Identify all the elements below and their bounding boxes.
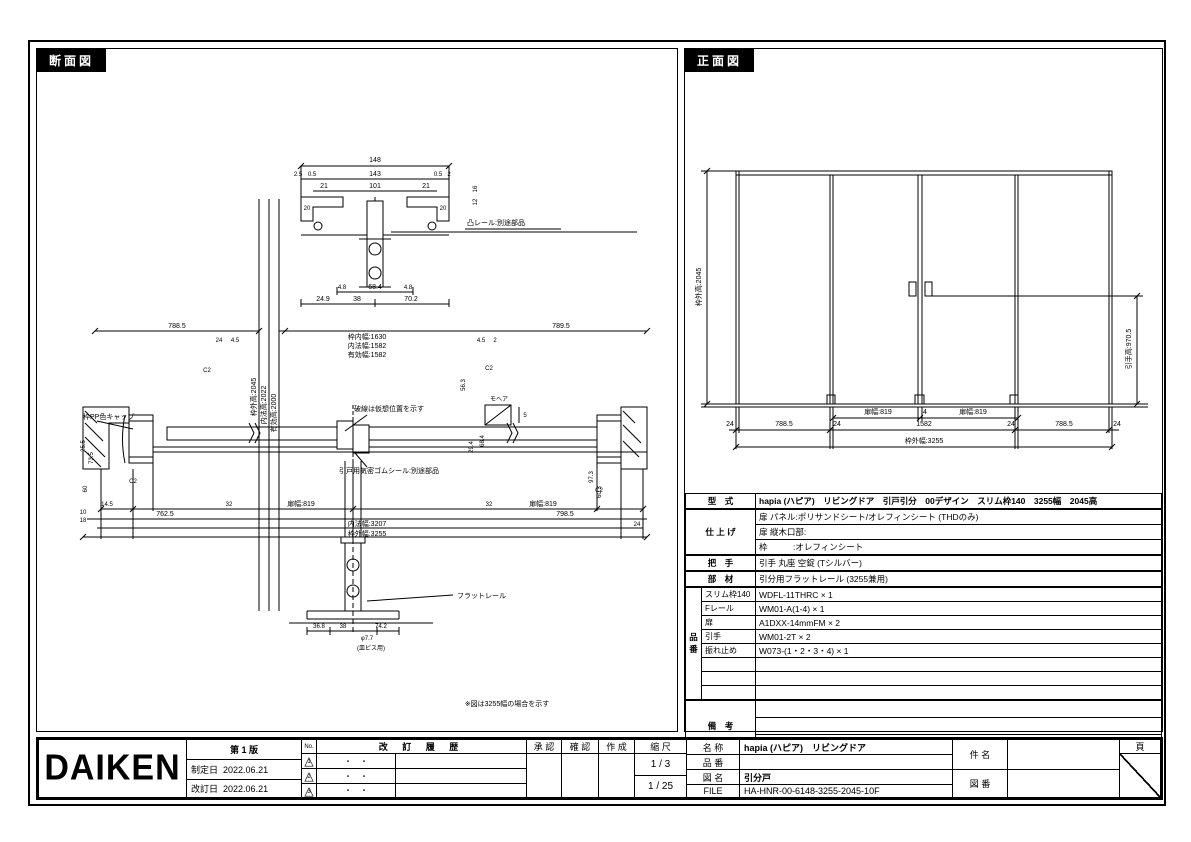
dim-label: 5	[523, 413, 527, 419]
dim-label: 25.5	[81, 440, 87, 452]
dim-label: 0.5	[434, 172, 443, 178]
revision-mark: △1	[301, 753, 317, 769]
dim-label: 内法幅:3207	[348, 519, 387, 528]
dim-label: 24	[216, 338, 223, 344]
dim-label: 60	[83, 485, 89, 492]
dim-label: 扉幅:819	[864, 407, 892, 416]
history-date: ・ ・	[316, 768, 396, 784]
dim-label: 788.5	[775, 421, 793, 428]
enacted-label: 制定日	[191, 763, 218, 776]
subject-value	[1007, 739, 1120, 770]
number-label: 図 番	[952, 769, 1008, 798]
dim-label: 枠PP色キャップ	[83, 412, 134, 421]
dim-label: 内法高:2022	[259, 386, 268, 425]
dim-label: 20	[440, 206, 447, 212]
dim-label: 24	[1113, 421, 1121, 428]
history-desc	[395, 768, 527, 784]
dim-label: 0.5	[308, 172, 317, 178]
dim-label: 788.5	[168, 323, 186, 330]
dim-label: 引手高:970.5	[1124, 329, 1133, 370]
spec-model-value: hapia (ハピア) リビングドア 引戸引分 00デザイン スリム枠140 3…	[756, 494, 1162, 510]
dim-label: モヘア	[490, 396, 508, 403]
dim-label: 36.8	[313, 624, 325, 630]
subject-label: 件 名	[952, 739, 1008, 770]
dim-label: 4.5	[477, 338, 486, 344]
number-value	[1007, 769, 1120, 798]
enacted-date: 2022.06.21	[223, 765, 268, 775]
approve-label: 承 認	[526, 739, 562, 754]
spec-table: 型 式 hapia (ハピア) リビングドア 引戸引分 00デザイン スリム枠1…	[685, 493, 1162, 752]
dim-label: 56.3	[461, 379, 467, 391]
dim-label: 枠外高:2045	[694, 268, 703, 307]
spec-hinban-name: スリム枠140	[702, 587, 756, 602]
dim-label: 24	[726, 421, 734, 428]
dim-label: 2	[493, 338, 497, 344]
dim-label: 18	[80, 518, 87, 524]
edition-label: 第 1 版	[186, 739, 302, 760]
front-view-panel: 正面図	[684, 48, 1163, 732]
dim-label: 24	[1007, 421, 1015, 428]
revision-mark: △2	[301, 768, 317, 784]
dim-label: 2	[447, 172, 451, 178]
front-view-title: 正面図	[685, 49, 754, 72]
dim-label: 789.5	[552, 323, 570, 330]
dim-label: 枠外幅:3255	[905, 436, 944, 445]
dim-label: 788.5	[1055, 421, 1073, 428]
dim-label: 4.8	[404, 285, 413, 291]
spec-hinban-name	[702, 686, 756, 701]
dim-label: 60.3	[597, 486, 603, 498]
spec-finish-row: 枠 :オレフィンシート	[756, 540, 1162, 556]
approve-box	[526, 753, 562, 798]
item-label: 品 番	[686, 754, 740, 770]
spec-hinban-value: WM01-A(1-4) × 1	[756, 602, 1162, 616]
revised-label: 改訂日	[191, 782, 218, 795]
scale-value: 1 / 25	[634, 775, 687, 798]
revised-date: 2022.06.21	[223, 784, 268, 794]
spec-finish-row: 扉 縦木口部:	[756, 525, 1162, 540]
dim-label: 74.2	[375, 624, 387, 630]
check-box	[561, 753, 599, 798]
dim-label: 4.5	[231, 338, 240, 344]
dim-label: 73.5	[89, 452, 95, 464]
dim-label: 4	[923, 409, 927, 416]
dim-label: 101	[369, 183, 381, 190]
name-value: hapia (ハピア) リビングドア	[739, 739, 953, 755]
dim-label: ※図は3255幅の場合を示す	[465, 699, 549, 708]
create-label: 作 成	[598, 739, 635, 754]
dim-label: 68.4	[368, 284, 382, 291]
spec-hinban-value: WDFL-11THRC × 1	[756, 587, 1162, 602]
dim-label: 24	[833, 421, 841, 428]
dim-label: 内法幅:1582	[348, 341, 387, 350]
history-desc	[395, 753, 527, 769]
no-label: No.	[301, 739, 317, 754]
revision-mark: △3	[301, 783, 317, 798]
dim-label: 21	[422, 183, 430, 190]
file-label: FILE	[686, 784, 740, 798]
dim-label: 38	[353, 296, 361, 303]
history-desc	[395, 783, 527, 798]
check-label: 確 認	[561, 739, 599, 754]
dim-label: 破線は仮想位置を示す	[354, 404, 424, 413]
spec-hinban-name: 振れ止め	[702, 644, 756, 658]
dim-label: 枠内幅:1630	[348, 332, 387, 341]
dim-label: 68.4	[480, 435, 486, 447]
spec-hinban-label: 品番	[686, 587, 702, 700]
name-label: 名 称	[686, 739, 740, 755]
dim-label: 21	[320, 183, 328, 190]
dim-label: 24.9	[316, 296, 330, 303]
spec-hinban-name: 引手	[702, 630, 756, 644]
dim-label: 12	[473, 198, 479, 205]
spec-handle-value: 引手 丸座 空錠 (Tシルバー)	[756, 555, 1162, 571]
dim-label: 798.5	[556, 511, 574, 518]
spec-parts-value: 引分用フラットレール (3255兼用)	[756, 571, 1162, 587]
dim-label: C2	[485, 366, 493, 372]
dim-label: 32	[486, 502, 493, 508]
dim-label: 143	[369, 171, 381, 178]
dim-label: (皿ビス用)	[357, 644, 385, 652]
spec-hinban-name	[702, 658, 756, 672]
history-label: 改 訂 履 歴	[316, 739, 527, 754]
spec-parts-label: 部 材	[686, 571, 756, 587]
dim-label: 14.5	[101, 502, 113, 508]
enacted-row: 制定日 2022.06.21	[186, 759, 302, 780]
dim-label: 1582	[916, 421, 932, 428]
history-date: ・ ・	[316, 783, 396, 798]
dim-label: 16	[473, 185, 479, 192]
dim-label: C2	[129, 479, 137, 485]
dim-label: 扉幅:819	[529, 499, 557, 508]
section-view-title: 断面図	[37, 49, 106, 72]
file-value: HA-HNR-00-6148-3255-2045-10F	[739, 784, 953, 798]
spec-finish-row: 扉 パネル:ポリサンドシート/オレフィンシート (THDのみ)	[756, 509, 1162, 525]
drawing-name-label: 図 名	[686, 769, 740, 785]
spec-hinban-value: A1DXX-14mmFM × 2	[756, 616, 1162, 630]
item-value	[739, 754, 953, 770]
title-block: DAIKEN 第 1 版 制定日 2022.06.21 改訂日 2022.06.…	[36, 737, 1163, 800]
spec-hinban-name: 扉	[702, 616, 756, 630]
revised-row: 改訂日 2022.06.21	[186, 779, 302, 798]
dim-label: 24	[634, 522, 641, 528]
spec-hinban-name	[702, 672, 756, 686]
spec-remarks-row	[756, 718, 1162, 735]
spec-hinban-name: Fレール	[702, 602, 756, 616]
scale-label: 縮 尺	[634, 739, 687, 754]
dim-label: 762.5	[156, 511, 174, 518]
dim-label: 20	[304, 206, 311, 212]
spec-handle-label: 把 手	[686, 555, 756, 571]
dim-label: 2.5	[294, 172, 303, 178]
section-view-panel: 断面図	[36, 48, 678, 732]
dim-label: 38	[340, 624, 347, 630]
drawing-name-value: 引分戸	[739, 769, 953, 785]
dim-label: 凸レール:別途部品	[467, 218, 525, 227]
dim-label: 引戸用気密ゴムシール:別途部品	[339, 466, 439, 475]
dim-label: 有効高:2000	[269, 394, 278, 433]
dim-label: 扉幅:819	[287, 499, 315, 508]
dim-label: 有効幅:1582	[348, 350, 387, 359]
page-label: 頁	[1119, 739, 1161, 754]
dim-label: 扉幅:819	[959, 407, 987, 416]
create-box	[598, 753, 635, 798]
dim-label: C2	[203, 368, 211, 374]
dim-label: φ7.7	[361, 636, 374, 642]
dim-label: 29.4	[469, 441, 475, 453]
dim-label: 97.3	[589, 471, 595, 483]
spec-model-label: 型 式	[686, 494, 756, 510]
spec-finish-label: 仕 上 げ	[686, 509, 756, 555]
daiken-logo: DAIKEN	[38, 739, 187, 798]
spec-hinban-value: W073-(1・2・3・4) × 1	[756, 644, 1162, 658]
dim-label: 70.2	[404, 296, 418, 303]
dim-label: 枠外高:2045	[249, 378, 258, 417]
dim-label: 枠外幅:3255	[348, 529, 387, 538]
scale-value: 1 / 3	[634, 753, 687, 776]
dim-label: 4.8	[338, 285, 347, 291]
dim-label: フラットレール	[457, 592, 506, 600]
dim-label: 148	[369, 157, 381, 164]
history-date: ・ ・	[316, 753, 396, 769]
section-view-drawing: 1482.50.51430.52211012120201612凸レール:別途部品…	[37, 49, 677, 731]
dim-label: 32	[226, 502, 233, 508]
dim-label: 10	[80, 510, 87, 516]
spec-hinban-value: WM01-2T × 2	[756, 630, 1162, 644]
spec-remarks-row	[756, 700, 1162, 718]
front-view-drawing: 枠外高:2045引手高:970.5扉幅:8194扉幅:81924788.5241…	[685, 49, 1162, 493]
page-box	[1119, 753, 1161, 798]
